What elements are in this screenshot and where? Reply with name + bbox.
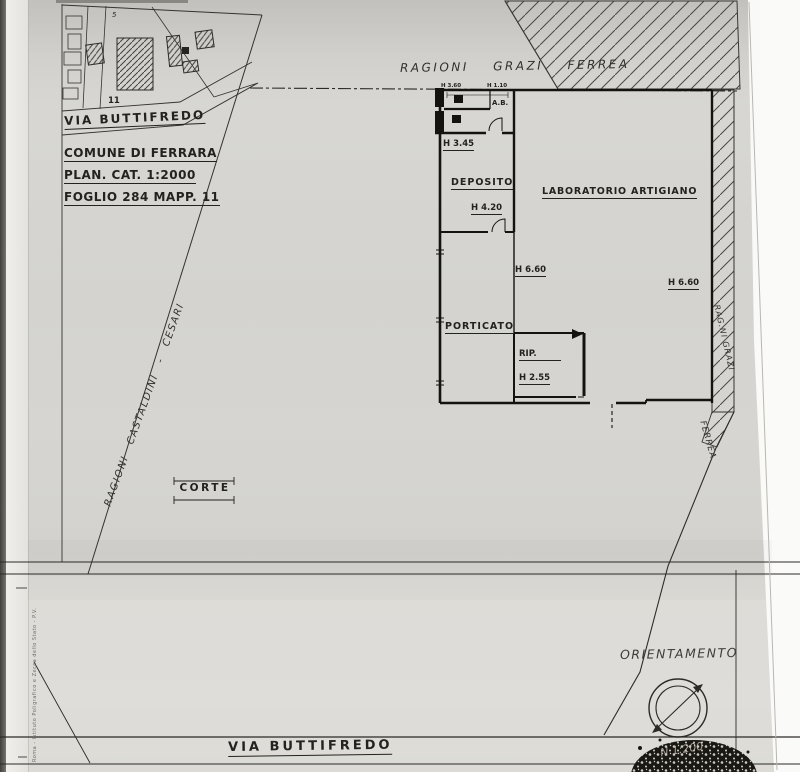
neighbor-hatch-area <box>505 1 740 89</box>
ripostiglio-room-label: RIP. <box>519 350 561 361</box>
deposito-room-label: DEPOSITO <box>451 178 513 190</box>
title-plan-scale: PLAN. CAT. 1:2000 <box>64 169 196 184</box>
annex-room-label: A.B. <box>492 100 508 107</box>
laboratorio-height-left: H 6.60 <box>515 266 546 277</box>
orientation-label: ORIENTAMENTO <box>620 647 738 662</box>
lower-boundary-lines <box>0 562 800 763</box>
door-arrow-icon <box>572 329 583 339</box>
laboratorio-height-right: H 6.60 <box>668 279 699 290</box>
print-margin-note: Roma - Istituto Poligrafico e Zecca dell… <box>33 608 38 762</box>
deposito-door-height: H 4.20 <box>471 204 502 215</box>
scanned-cadastral-plan: VIA BUTTIFREDO 11 5 COMUNE DI FERRARA PL… <box>0 0 800 772</box>
bottom-street-label: VIA BUTTIFREDO <box>228 739 393 757</box>
porticato-room-label: PORTICATO <box>445 322 514 334</box>
deposito-height: H 3.45 <box>443 140 474 151</box>
inset-parcel-number: 11 <box>108 97 120 106</box>
paper-edge-crease <box>749 2 777 770</box>
annex-height-right: H 1.10 <box>487 84 507 90</box>
annex-height-left: H 3.60 <box>441 84 461 90</box>
title-municipality: COMUNE DI FERRARA <box>64 147 217 162</box>
margin-dashes <box>16 588 27 757</box>
orientation-compass-icon <box>649 679 707 737</box>
title-sheet-parcel: FOGLIO 284 MAPP. 11 <box>64 191 220 206</box>
ripostiglio-height: H 2.55 <box>519 374 550 385</box>
laboratorio-room-label: LABORATORIO ARTIGIANO <box>542 187 697 199</box>
courtyard-label: CORTE <box>176 483 234 494</box>
north-boundary-label: RAGIONI GRAZI FERREA <box>400 58 630 74</box>
inset-hatched-buildings <box>86 30 214 90</box>
building-walls <box>435 88 712 428</box>
inset-subparcel-number: 5 <box>112 12 116 19</box>
